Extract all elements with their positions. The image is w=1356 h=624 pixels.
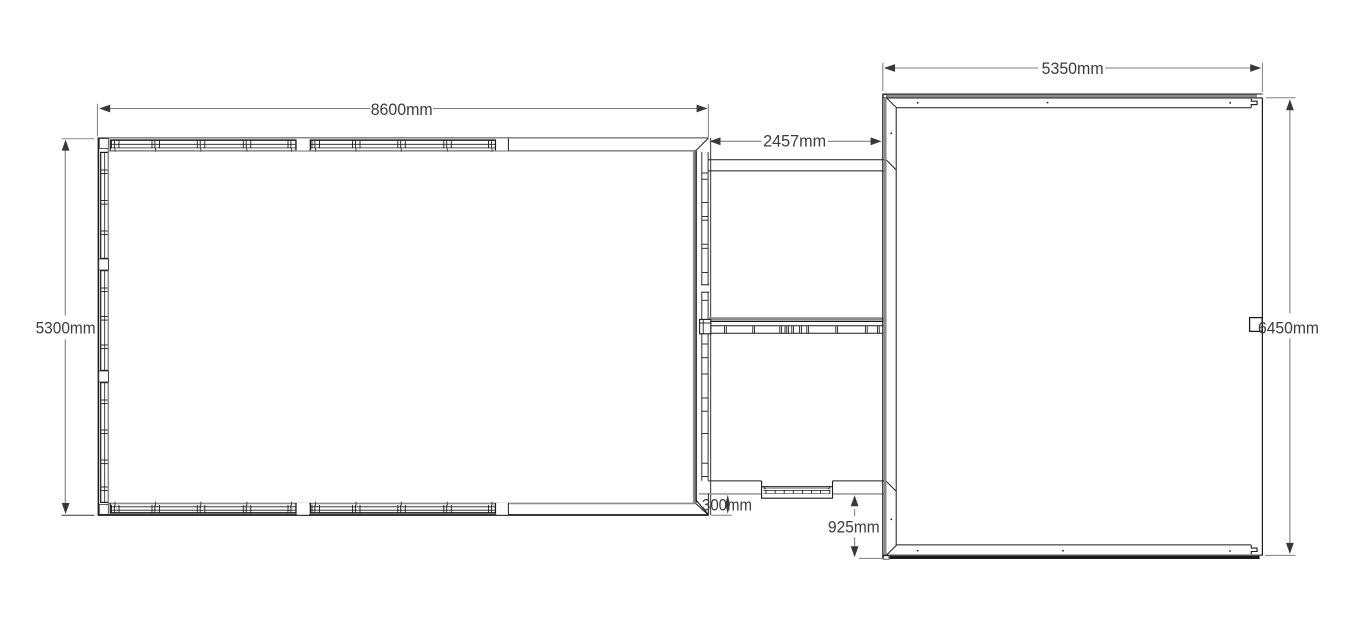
svg-text:6450mm: 6450mm (1258, 319, 1319, 337)
svg-text:8600mm: 8600mm (371, 101, 433, 119)
svg-text:2457mm: 2457mm (763, 133, 826, 151)
svg-text:300mm: 300mm (702, 497, 752, 515)
svg-text:5300mm: 5300mm (36, 320, 96, 338)
svg-text:925mm: 925mm (828, 519, 880, 537)
svg-text:5350mm: 5350mm (1042, 60, 1104, 78)
